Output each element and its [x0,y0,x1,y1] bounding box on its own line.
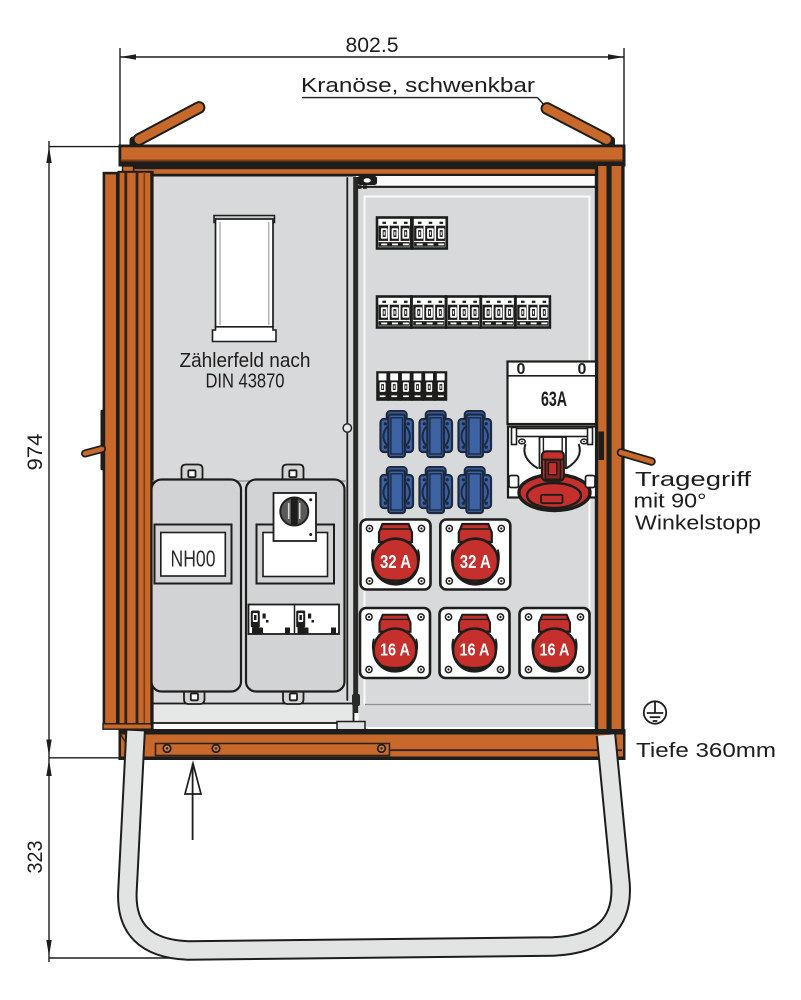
svg-text:0: 0 [517,361,526,378]
svg-text:NH00: NH00 [171,546,216,572]
svg-text:16 A: 16 A [540,640,570,660]
svg-text:DIN 43870: DIN 43870 [206,370,285,393]
svg-text:323: 323 [24,841,47,874]
svg-text:16 A: 16 A [460,640,490,660]
svg-text:802.5: 802.5 [346,34,399,57]
svg-text:32 A: 32 A [380,552,411,572]
svg-text:mit 90°: mit 90° [634,490,707,513]
svg-text:32 A: 32 A [460,552,491,572]
svg-text:Kranöse, schwenkbar: Kranöse, schwenkbar [301,74,535,97]
svg-text:Winkelstopp: Winkelstopp [635,512,761,535]
svg-text:Tragegriff: Tragegriff [635,468,751,491]
svg-text:974: 974 [24,433,47,470]
svg-text:0: 0 [578,361,587,378]
svg-text:63A: 63A [541,387,567,411]
svg-text:16 A: 16 A [380,640,410,660]
svg-text:Tiefe 360mm: Tiefe 360mm [636,739,776,762]
